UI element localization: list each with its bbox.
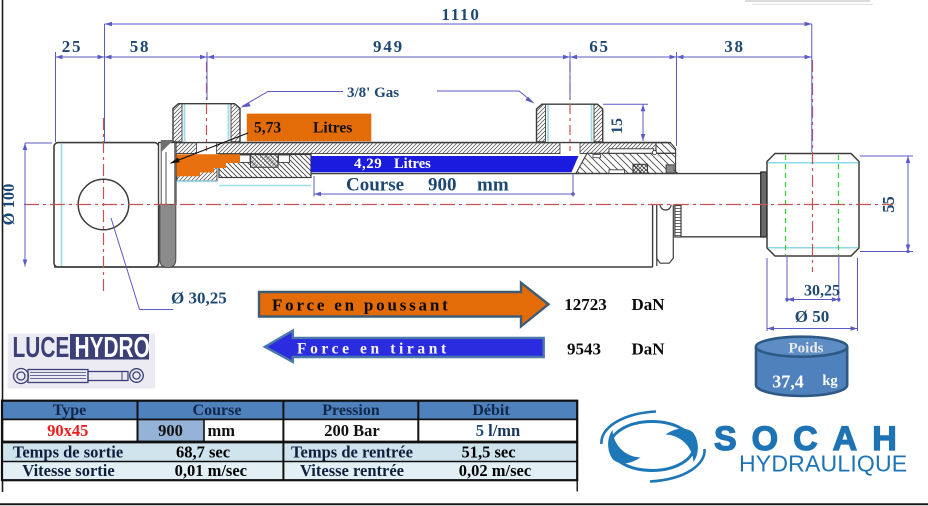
svg-text:55: 55	[879, 196, 898, 213]
svg-text:mm: mm	[208, 421, 236, 440]
svg-text:68,7 sec: 68,7 sec	[176, 443, 230, 462]
svg-text:9543: 9543	[567, 340, 601, 359]
svg-text:949: 949	[373, 37, 404, 56]
svg-text:1110: 1110	[441, 5, 480, 24]
svg-text:Ø 100: Ø 100	[0, 184, 18, 226]
svg-text:Litres: Litres	[313, 120, 352, 137]
svg-text:38: 38	[724, 37, 745, 56]
svg-text:3/8' Gas: 3/8' Gas	[347, 85, 399, 101]
svg-text:Vitesse rentrée: Vitesse rentrée	[300, 461, 404, 480]
svg-text:5 l/mn: 5 l/mn	[476, 421, 520, 440]
svg-text:15: 15	[609, 118, 626, 134]
svg-text:Litres: Litres	[394, 156, 431, 172]
svg-text:30,25: 30,25	[804, 283, 840, 300]
svg-text:Temps de rentrée: Temps de rentrée	[291, 443, 413, 462]
svg-text:5,73: 5,73	[254, 120, 281, 137]
svg-text:Temps de sortie: Temps de sortie	[13, 443, 123, 462]
svg-text:DaN: DaN	[631, 340, 665, 359]
svg-text:kg: kg	[822, 373, 838, 389]
svg-text:Pression: Pression	[322, 402, 380, 419]
svg-text:LUCE: LUCE	[13, 332, 70, 364]
svg-text:51,5 sec: 51,5 sec	[461, 443, 515, 462]
svg-text:DaN: DaN	[631, 295, 665, 314]
svg-text:4,29: 4,29	[354, 156, 382, 172]
svg-text:37,4: 37,4	[772, 372, 804, 392]
svg-text:HYDRO: HYDRO	[75, 332, 150, 364]
svg-text:Poids: Poids	[788, 341, 823, 357]
svg-text:HYDRAULIQUE: HYDRAULIQUE	[739, 451, 907, 477]
svg-text:Course: Course	[346, 175, 404, 196]
svg-text:Force en poussant: Force en poussant	[272, 296, 451, 315]
svg-text:58: 58	[130, 37, 151, 56]
svg-text:Type: Type	[53, 402, 86, 419]
svg-text:Ø 50: Ø 50	[795, 307, 829, 326]
svg-text:12723: 12723	[564, 295, 607, 314]
svg-text:Débit: Débit	[472, 402, 510, 419]
svg-text:25: 25	[62, 37, 83, 56]
svg-text:Vitesse sortie: Vitesse sortie	[22, 461, 114, 480]
svg-text:Course: Course	[193, 402, 242, 419]
svg-text:Ø 30,25: Ø 30,25	[171, 289, 227, 308]
svg-text:900: 900	[428, 175, 457, 196]
svg-text:mm: mm	[477, 175, 509, 196]
svg-text:65: 65	[589, 37, 610, 56]
svg-text:0,01 m/sec: 0,01 m/sec	[175, 461, 247, 480]
svg-text:90x45: 90x45	[47, 421, 88, 440]
svg-text:0,02 m/sec: 0,02 m/sec	[459, 461, 531, 480]
svg-text:900: 900	[158, 421, 183, 440]
svg-text:Force en tirant: Force en tirant	[297, 340, 450, 357]
svg-text:200 Bar: 200 Bar	[324, 421, 379, 440]
